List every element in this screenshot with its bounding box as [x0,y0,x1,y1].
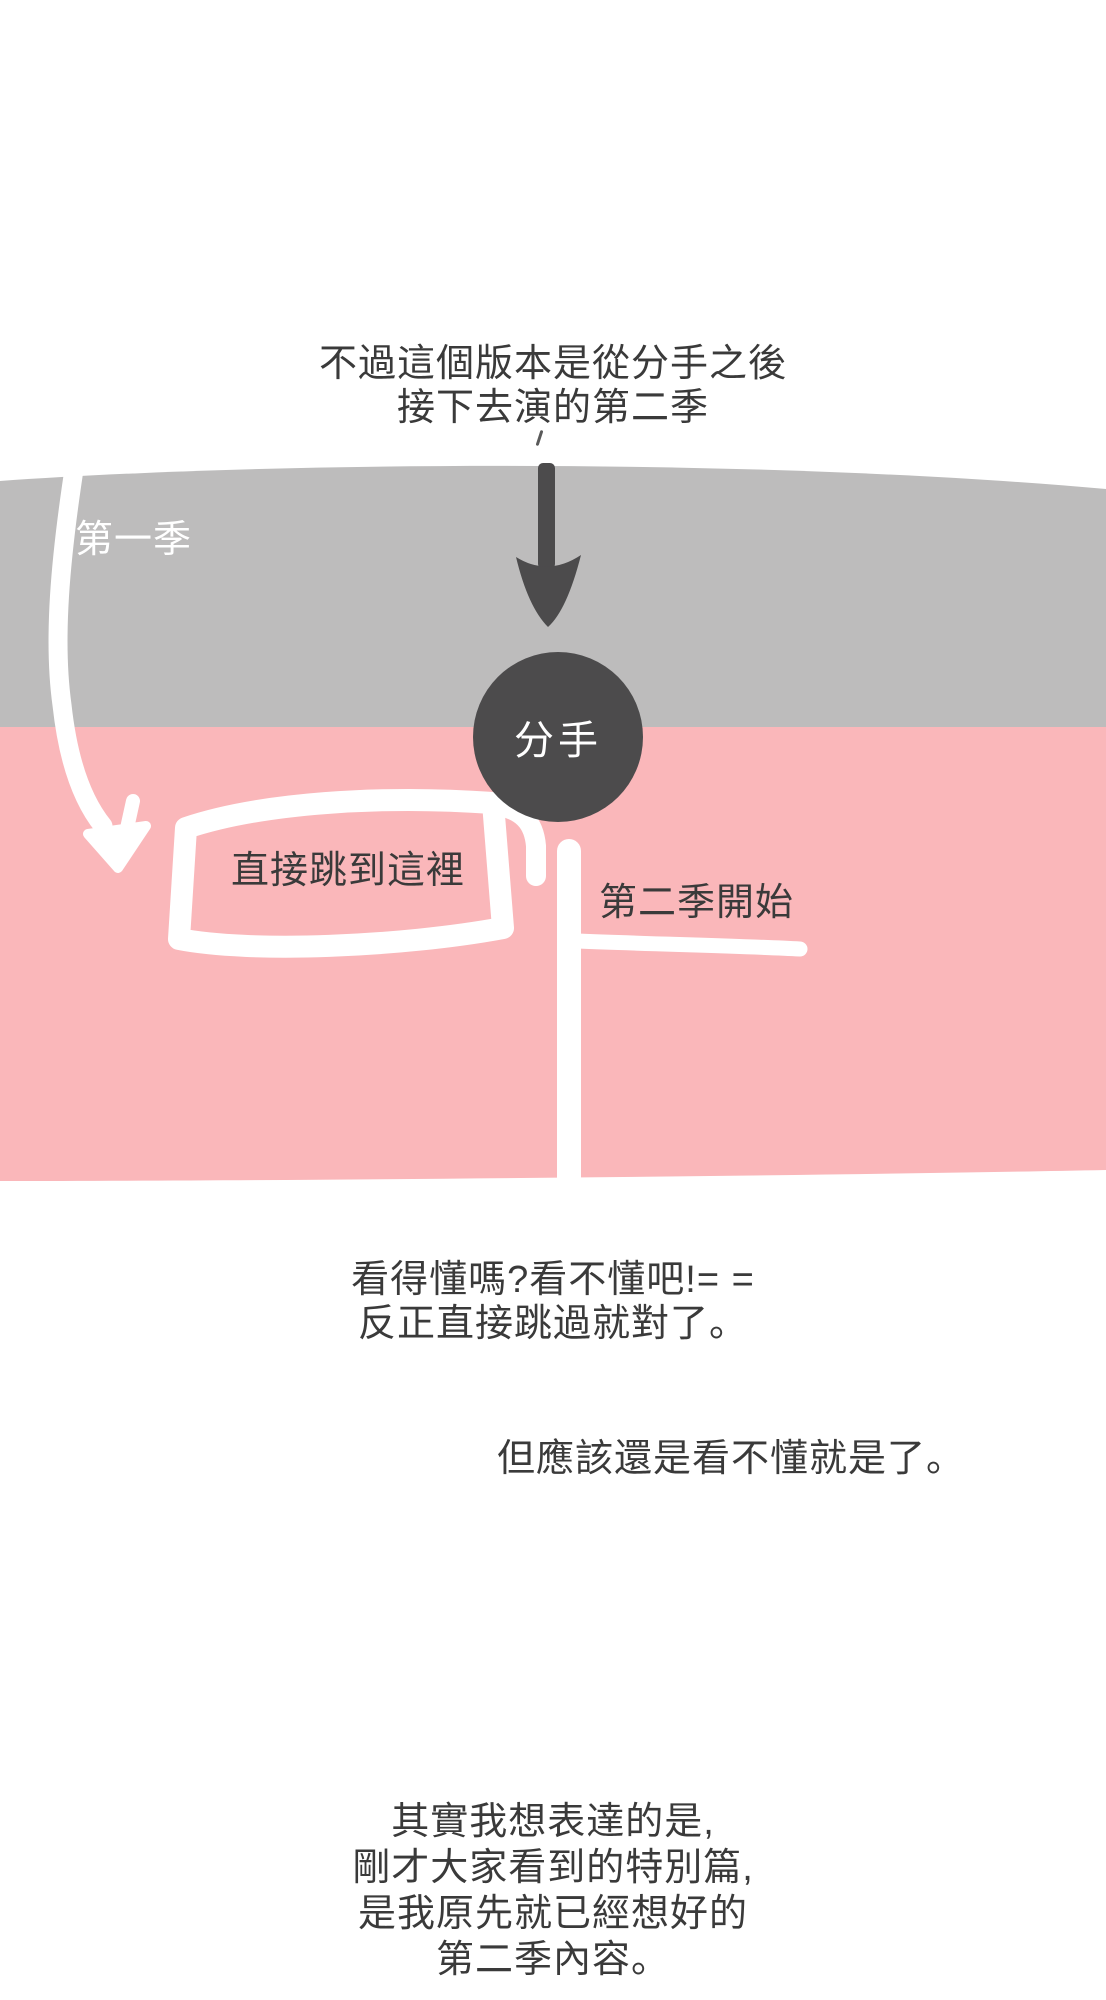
season1-label: 第一季 [75,518,192,562]
footer-line3: 是我原先就已經想好的 [0,1891,1106,1937]
mid-commentary-line2: 反正直接跳過就對了。 [0,1302,1106,1346]
down-arrow-shaft [538,463,555,569]
footer-line1: 其實我想表達的是, [0,1799,1106,1845]
comic-page: 不過這個版本是從分手之後 接下去演的第二季 第一季 分手 直接跳到這裡 第二季開… [0,0,1106,2000]
season2-label: 第二季開始 [599,881,794,925]
footer-paragraph: 其實我想表達的是, 剛才大家看到的特別篇, 是我原先就已經想好的 第二季內容。 [0,1799,1106,1983]
intro-caption-line1: 不過這個版本是從分手之後 [0,342,1106,386]
jump-box-label: 直接跳到這裡 [231,849,465,893]
mid-commentary-line3: 但應該還是看不懂就是了。 [497,1437,965,1481]
footer-line2: 剛才大家看到的特別篇, [0,1845,1106,1891]
mid-commentary: 看得懂嗎?看不懂吧!= = 反正直接跳過就對了。 [0,1258,1106,1346]
breakup-label: 分手 [473,652,643,822]
mid-commentary-line1: 看得懂嗎?看不懂吧!= = [0,1258,1106,1302]
flow-arrowhead-wing [124,801,133,842]
footer-line4: 第二季內容。 [0,1937,1106,1983]
intro-caption: 不過這個版本是從分手之後 接下去演的第二季 [0,342,1106,430]
season2-timeline-horizontal-line [578,941,800,949]
